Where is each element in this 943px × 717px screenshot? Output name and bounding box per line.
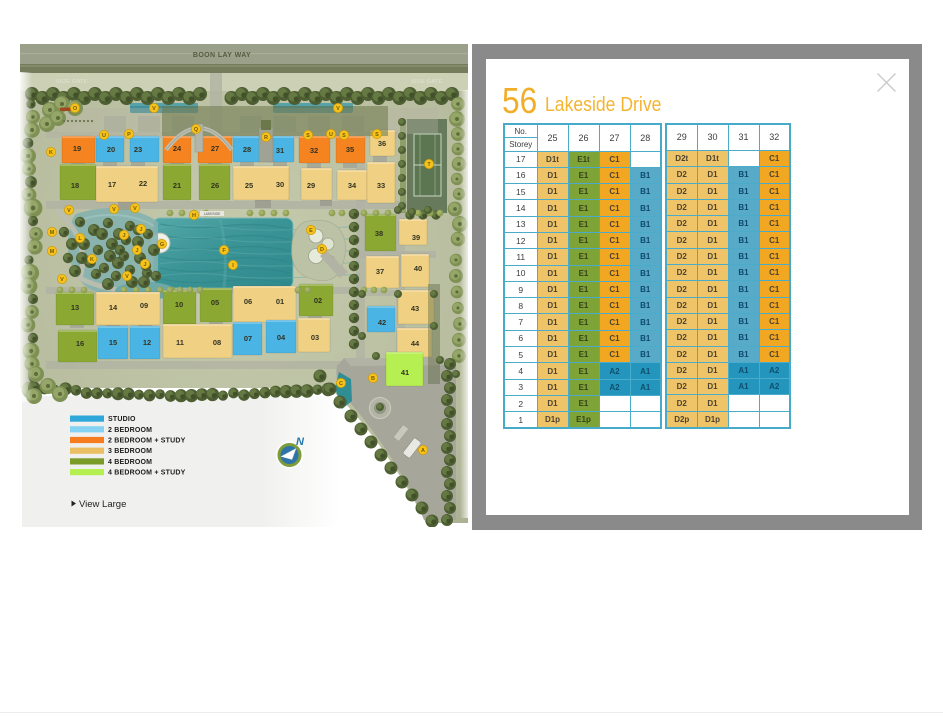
svg-text:SIDE GATE: SIDE GATE	[56, 79, 88, 85]
svg-text:36: 36	[378, 139, 386, 148]
svg-text:27: 27	[211, 144, 219, 153]
svg-text:K: K	[90, 257, 94, 263]
svg-text:P: P	[127, 132, 131, 138]
svg-text:SIDE GATE: SIDE GATE	[411, 79, 443, 85]
svg-text:29: 29	[307, 181, 315, 190]
svg-text:26: 26	[211, 181, 219, 190]
svg-text:4 BEDROOM: 4 BEDROOM	[108, 459, 152, 466]
svg-text:31: 31	[276, 146, 284, 155]
svg-text:35: 35	[346, 145, 354, 154]
svg-text:3 BEDROOM: 3 BEDROOM	[108, 448, 152, 455]
svg-text:G: G	[160, 242, 164, 248]
svg-text:H: H	[192, 213, 196, 219]
svg-text:19: 19	[73, 144, 81, 153]
svg-text:09: 09	[140, 301, 148, 310]
svg-text:V: V	[67, 208, 71, 214]
svg-text:42: 42	[378, 318, 386, 327]
svg-text:D: D	[320, 247, 324, 253]
svg-text:BOON LAY WAY: BOON LAY WAY	[193, 52, 251, 59]
svg-text:02: 02	[314, 296, 322, 305]
svg-text:2 BEDROOM: 2 BEDROOM	[108, 427, 152, 434]
svg-text:03: 03	[311, 333, 319, 342]
svg-text:N: N	[296, 436, 305, 448]
svg-text:Q: Q	[194, 127, 199, 133]
svg-text:2 BEDROOM + STUDY: 2 BEDROOM + STUDY	[108, 438, 186, 445]
svg-text:06: 06	[244, 297, 252, 306]
svg-text:M: M	[50, 230, 55, 236]
svg-text:J: J	[122, 233, 125, 239]
svg-text:V: V	[336, 106, 340, 112]
svg-text:V: V	[125, 274, 129, 280]
svg-text:40: 40	[414, 264, 422, 273]
svg-text:43: 43	[411, 304, 419, 313]
svg-text:V: V	[60, 277, 64, 283]
svg-text:37: 37	[376, 267, 384, 276]
svg-text:B: B	[371, 376, 375, 382]
svg-text:A: A	[421, 448, 425, 454]
svg-text:J: J	[135, 248, 138, 254]
svg-text:38: 38	[375, 229, 383, 238]
svg-text:4 BEDROOM + STUDY: 4 BEDROOM + STUDY	[108, 470, 186, 477]
svg-text:22: 22	[139, 179, 147, 188]
svg-text:M: M	[50, 249, 55, 255]
svg-text:V: V	[112, 207, 116, 213]
svg-text:O: O	[73, 106, 78, 112]
svg-text:20: 20	[107, 145, 115, 154]
svg-text:39: 39	[412, 233, 420, 242]
svg-text:K: K	[49, 150, 53, 156]
svg-text:S: S	[306, 133, 310, 139]
svg-text:STUDIO: STUDIO	[108, 416, 136, 423]
svg-text:25: 25	[245, 181, 253, 190]
svg-text:01: 01	[276, 297, 284, 306]
svg-text:07: 07	[244, 334, 252, 343]
svg-text:18: 18	[71, 181, 79, 190]
svg-text:08: 08	[213, 338, 221, 347]
svg-text:44: 44	[411, 339, 420, 348]
svg-text:C: C	[339, 381, 343, 387]
svg-text:24: 24	[173, 144, 182, 153]
svg-text:S: S	[375, 132, 379, 138]
svg-text:J: J	[139, 227, 142, 233]
svg-text:21: 21	[173, 181, 181, 190]
svg-text:U: U	[329, 132, 333, 138]
svg-text:04: 04	[277, 333, 286, 342]
svg-text:12: 12	[143, 338, 151, 347]
svg-text:30: 30	[276, 180, 284, 189]
svg-text:V: V	[133, 206, 137, 212]
svg-text:13: 13	[71, 303, 79, 312]
svg-text:33: 33	[377, 181, 385, 190]
svg-text:17: 17	[108, 180, 116, 189]
svg-text:28: 28	[243, 145, 251, 154]
svg-text:R: R	[264, 135, 268, 141]
svg-text:15: 15	[109, 338, 117, 347]
svg-text:J: J	[143, 262, 146, 268]
svg-text:V: V	[152, 106, 156, 112]
svg-text:10: 10	[175, 300, 183, 309]
svg-text:14: 14	[109, 303, 118, 312]
svg-text:S: S	[342, 133, 346, 139]
svg-text:16: 16	[76, 339, 84, 348]
svg-text:LAKESIDE: LAKESIDE	[204, 212, 221, 216]
svg-text:U: U	[102, 133, 106, 139]
svg-text:23: 23	[134, 145, 142, 154]
svg-text:41: 41	[401, 368, 409, 377]
svg-text:05: 05	[211, 298, 219, 307]
svg-text:11: 11	[176, 338, 184, 347]
svg-text:E: E	[309, 228, 313, 234]
svg-text:View Large: View Large	[79, 499, 126, 510]
svg-text:32: 32	[310, 146, 318, 155]
svg-text:34: 34	[348, 181, 357, 190]
